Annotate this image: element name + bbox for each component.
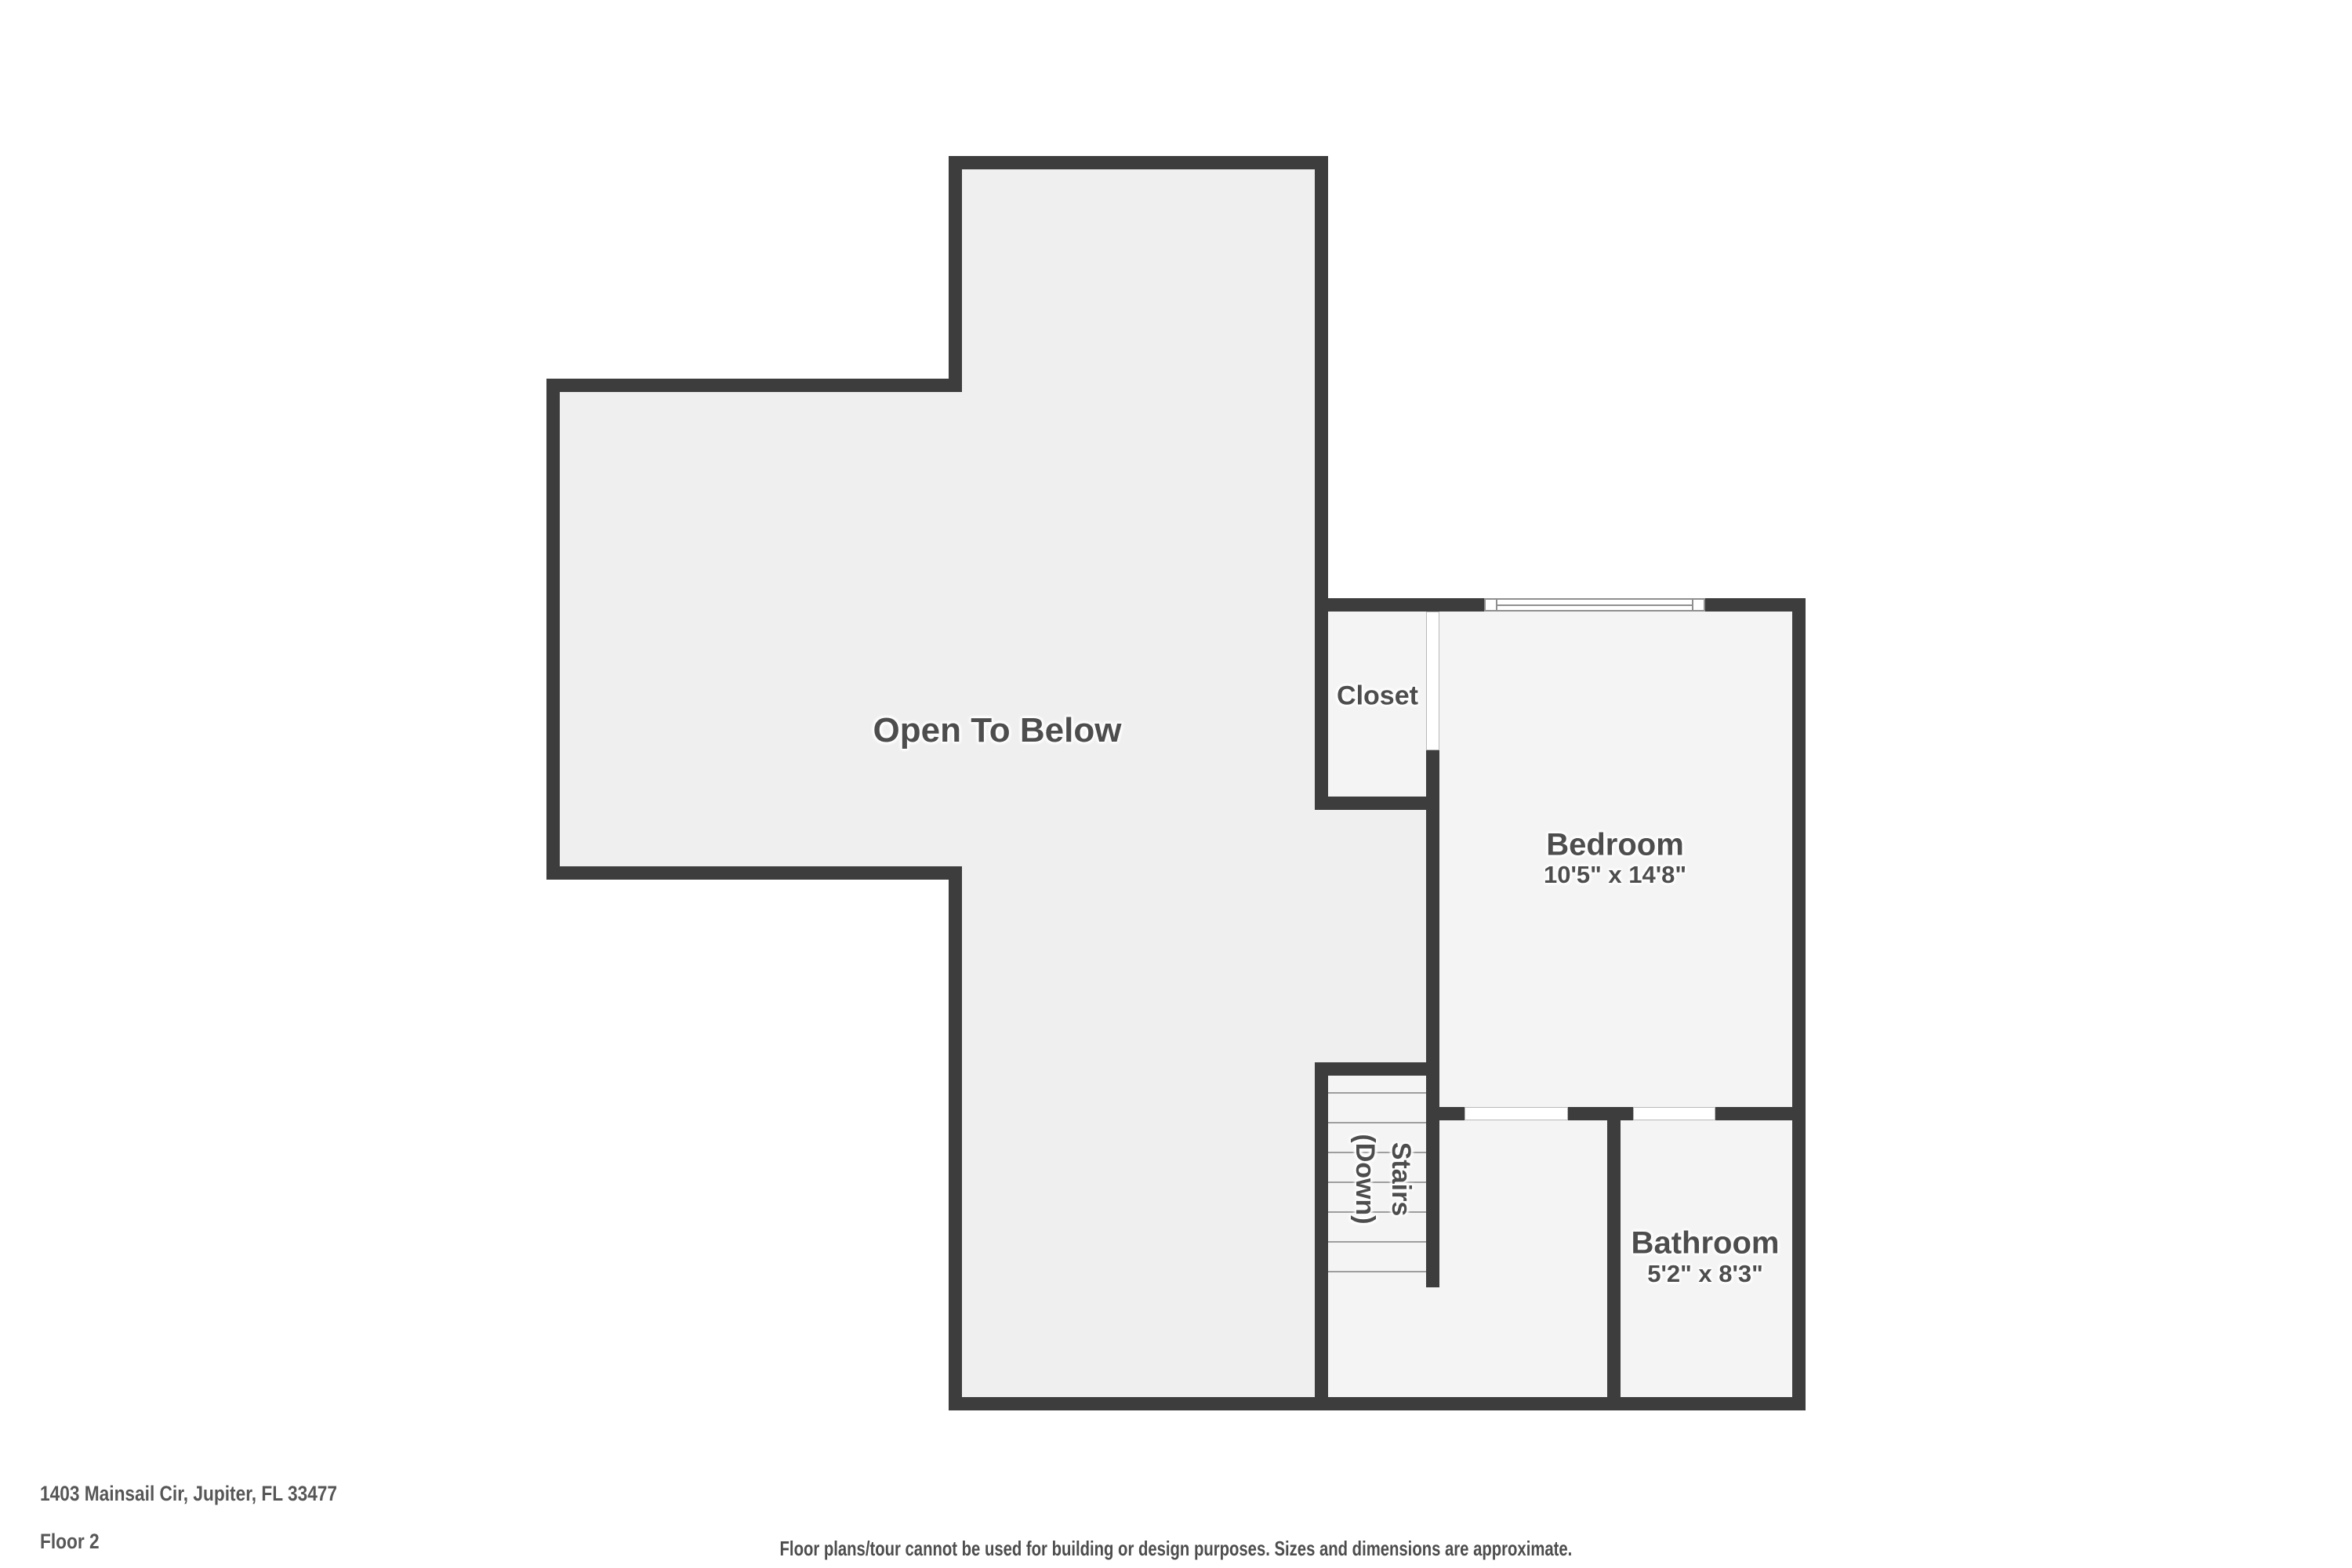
window-mullion-right <box>1692 600 1693 610</box>
wall-bedroom-left-divider <box>1426 750 1439 1287</box>
wall-bedroom-bottom-b <box>1568 1107 1633 1120</box>
closet-door-opening <box>1426 612 1439 750</box>
floor-open-landing <box>1315 810 1426 1062</box>
wall-bedroom-bottom-a <box>1426 1107 1465 1120</box>
wall-left-block-left <box>546 379 560 880</box>
wall-strip-left-lower <box>949 866 962 1410</box>
floor-open-left-block <box>560 392 962 866</box>
stair-tread <box>1328 1271 1426 1272</box>
wall-strip-left-upper <box>949 156 962 392</box>
window-glass-line <box>1497 604 1692 606</box>
wall-bedroom-bottom-c <box>1715 1107 1806 1120</box>
wall-strip-right-lower <box>1315 1062 1328 1410</box>
bathroom-door-opening <box>1633 1107 1715 1120</box>
stair-tread <box>1328 1122 1426 1123</box>
room-label-stairs: Stairs (Down) <box>1347 1134 1419 1224</box>
disclaimer-text: Floor plans/tour cannot be used for buil… <box>780 1537 1573 1561</box>
address-text: 1403 Mainsail Cir, Jupiter, FL 33477 <box>40 1482 337 1506</box>
floor-open-center-strip <box>962 169 1315 1397</box>
disclaimer-container: Floor plans/tour cannot be used for buil… <box>0 1537 2352 1561</box>
room-dimensions-bedroom: 10'5" x 14'8" <box>1544 861 1686 889</box>
stair-tread <box>1328 1092 1426 1094</box>
room-label-closet: Closet <box>1337 681 1418 712</box>
wall-left-block-bottom <box>546 866 962 880</box>
wall-left-block-top <box>546 379 962 392</box>
room-label-open-to-below: Open To Below <box>873 711 1122 750</box>
wall-closet-bottom <box>1315 797 1439 810</box>
bedroom-window <box>1484 598 1705 612</box>
hallway-door-opening <box>1465 1107 1568 1120</box>
wall-strip-right-upper <box>1315 156 1328 810</box>
stair-tread <box>1328 1241 1426 1243</box>
room-dimensions-bathroom: 5'2" x 8'3" <box>1647 1260 1763 1288</box>
floorplan-page: Open To Below Closet Bedroom 10'5" x 14'… <box>0 0 2352 1568</box>
room-label-bathroom: Bathroom <box>1632 1226 1780 1261</box>
wall-bottom <box>949 1397 1806 1410</box>
stairs-label-line2: (Down) <box>1347 1134 1383 1224</box>
stairs-label-line1: Stairs <box>1383 1134 1419 1224</box>
wall-right-exterior <box>1792 598 1806 1410</box>
wall-stairwell-top <box>1315 1062 1439 1076</box>
room-label-bedroom: Bedroom <box>1546 828 1684 863</box>
wall-bathroom-left <box>1607 1107 1621 1410</box>
wall-top-strip-top <box>949 156 1328 169</box>
